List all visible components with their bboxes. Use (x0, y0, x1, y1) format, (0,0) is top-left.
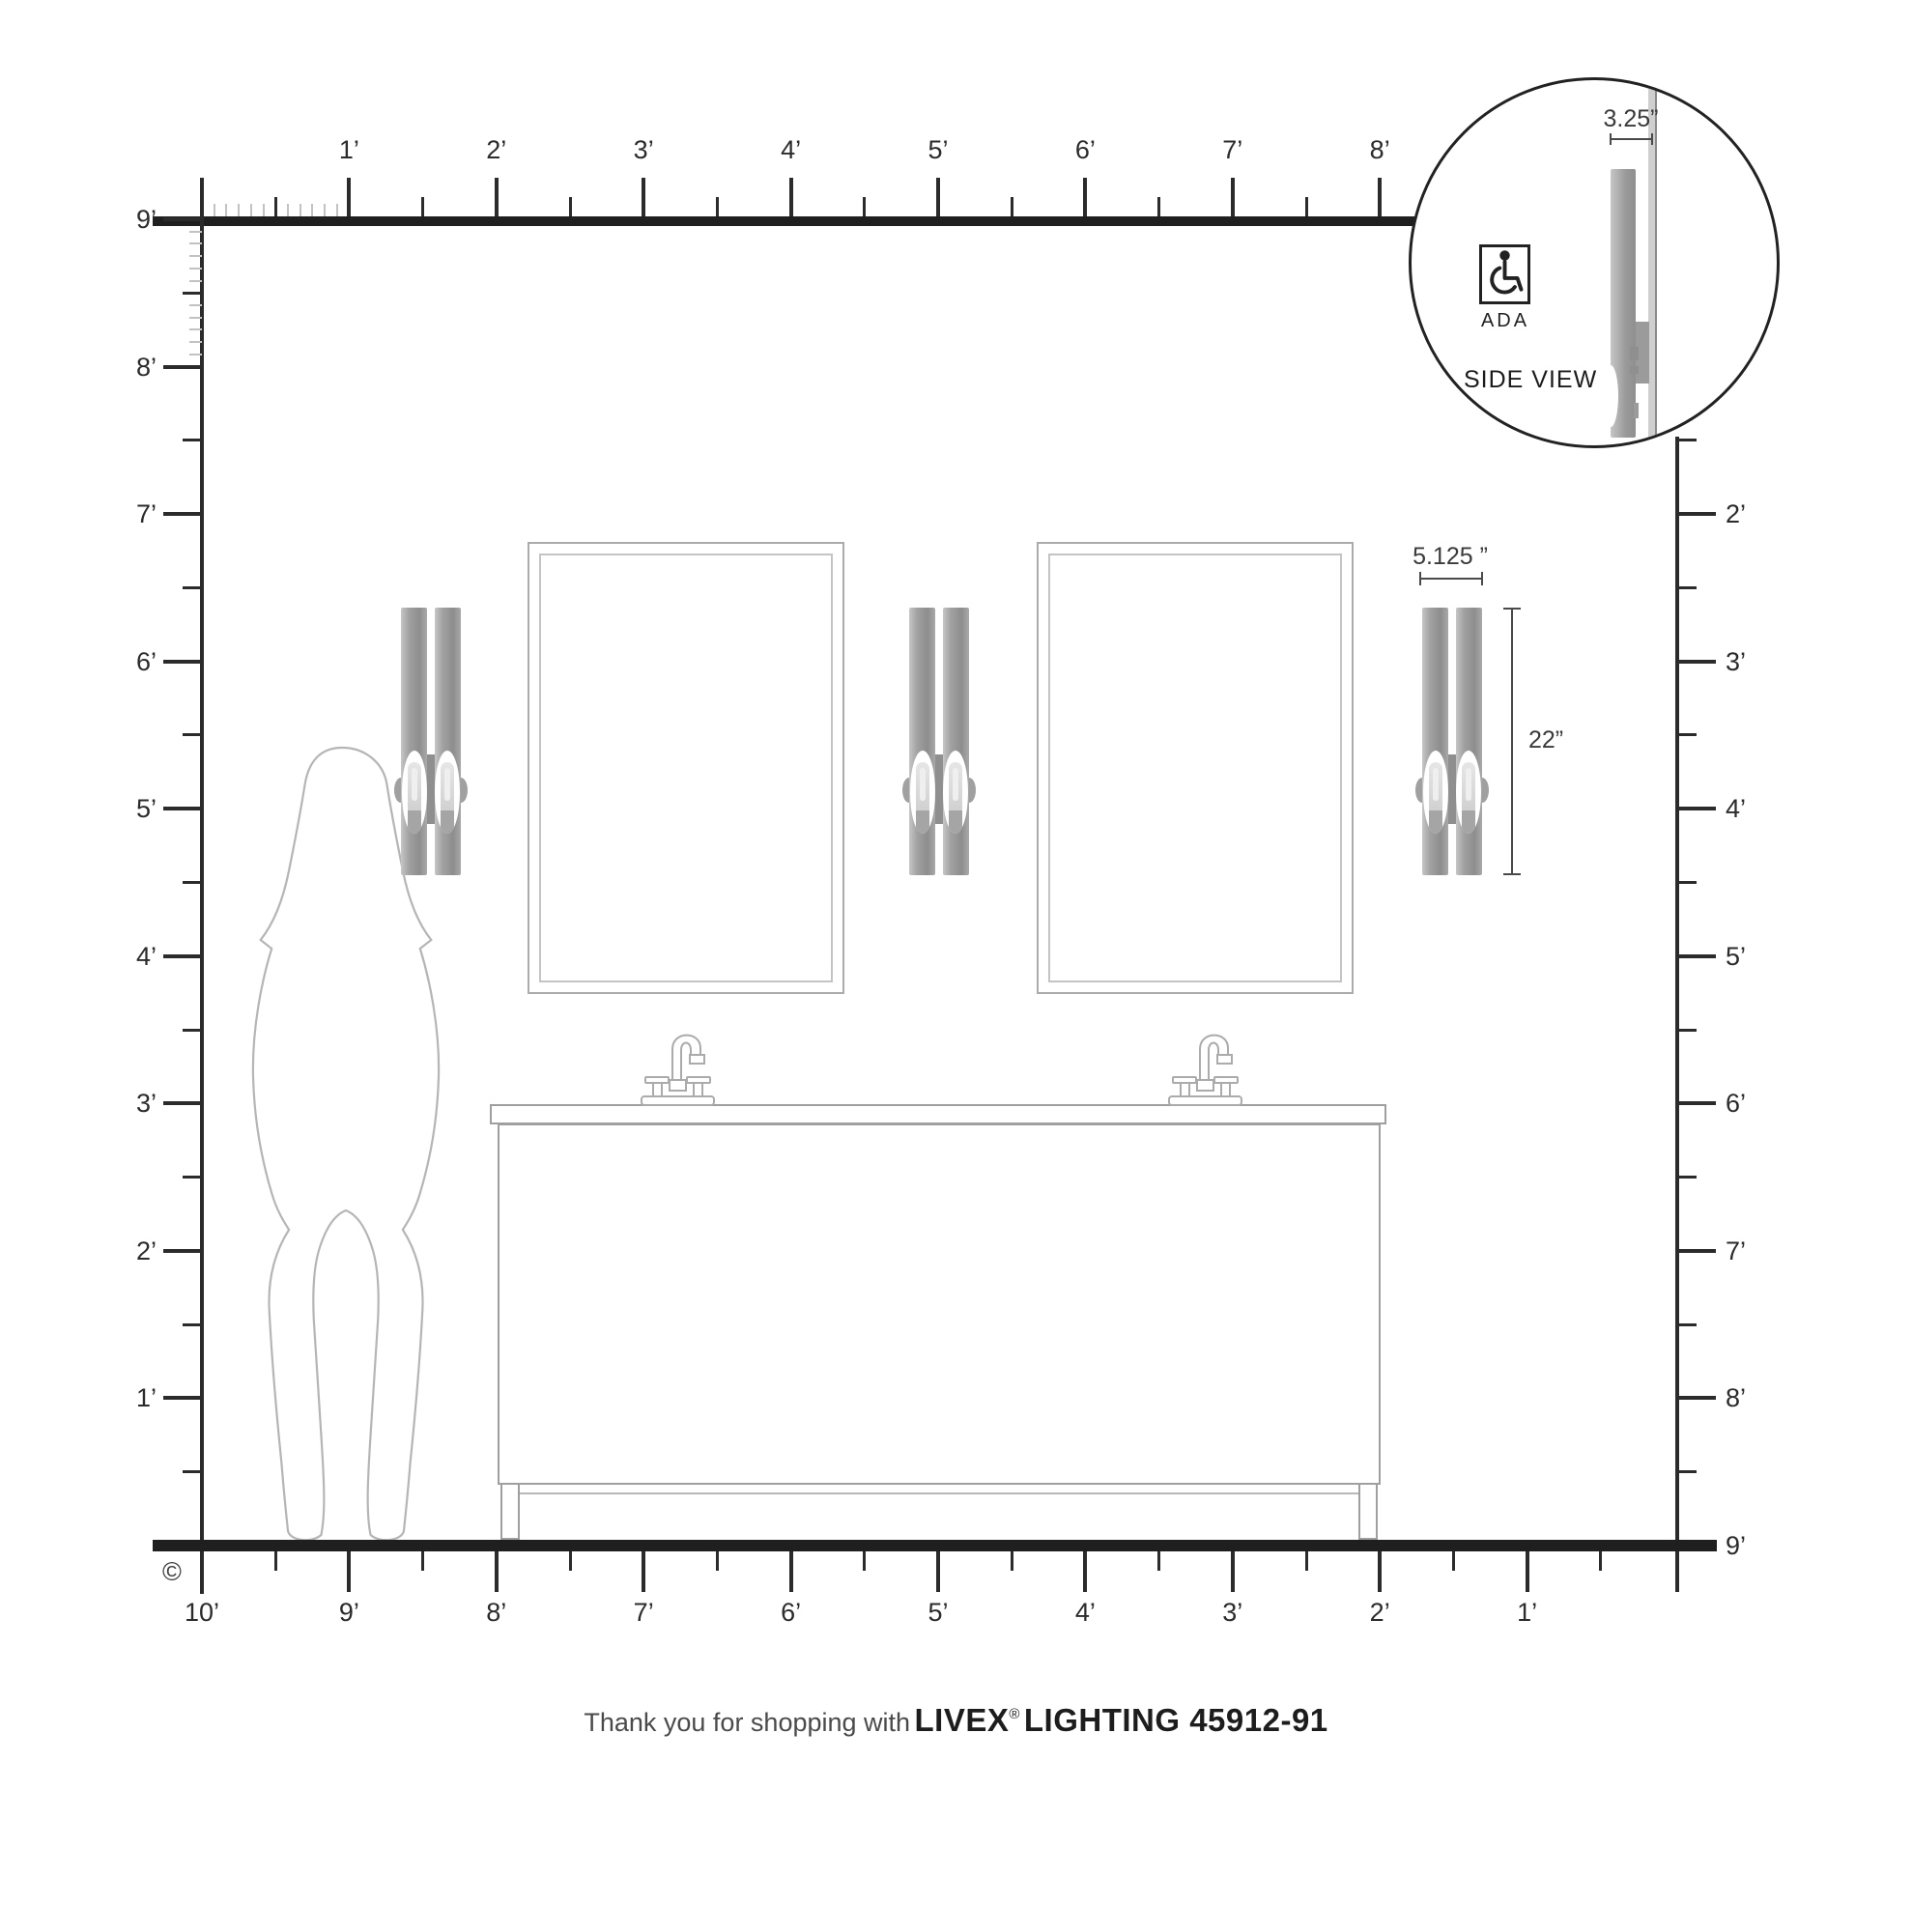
right-ruler-half-tick (1677, 1029, 1697, 1032)
top-ruler-half-tick (1157, 197, 1160, 216)
ruler-label: 4’ (136, 942, 157, 971)
ruler-label: 9’ (339, 1598, 359, 1627)
top-ruler-foot-tick (642, 178, 645, 216)
ruler-label: 3’ (634, 135, 654, 164)
left-ruler-half-tick (183, 439, 202, 441)
candle-bulb-icon (949, 762, 962, 812)
left-ruler-inch-tick (189, 328, 202, 330)
ada-box (1479, 244, 1530, 304)
top-ruler-foot-tick (347, 178, 351, 216)
height-dimension-end-cap (1503, 873, 1521, 875)
top-ruler-inch-tick (336, 204, 338, 216)
left-mirror (528, 542, 844, 994)
bottom-ruler-foot-tick (936, 1551, 940, 1592)
bottom-ruler-half-tick (1599, 1551, 1602, 1571)
left-ruler-foot-tick (163, 807, 202, 810)
left-ruler-half-tick (183, 733, 202, 736)
sconce-tube (943, 608, 969, 875)
ruler-label: 2’ (1726, 499, 1746, 528)
right-ruler-half-tick (1677, 586, 1697, 589)
left-ruler-inch-tick (189, 242, 202, 244)
bottom-ruler-foot-tick (495, 1551, 499, 1592)
inset-mount-knob (1630, 347, 1639, 360)
right-ruler-half-tick (1677, 1323, 1697, 1326)
left-ruler-half-tick (183, 1323, 202, 1326)
bulb-socket (1462, 810, 1475, 834)
left-ruler-inch-tick (189, 317, 202, 319)
top-ruler-inch-tick (250, 204, 252, 216)
ruler-label: 10’ (185, 1598, 219, 1627)
ruler-label: 1’ (1517, 1598, 1537, 1627)
ruler-label: 5’ (136, 794, 157, 823)
left-ruler-foot-tick (163, 365, 202, 369)
ruler-label: 5’ (1726, 942, 1746, 971)
ruler-label: 9’ (1726, 1531, 1746, 1560)
bottom-ruler-foot-tick (1231, 1551, 1235, 1592)
wheelchair-icon (1482, 247, 1527, 301)
left-ruler-half-tick (183, 1470, 202, 1473)
ruler-label: 4’ (1075, 1598, 1096, 1627)
inset-mount-knob (1630, 366, 1639, 374)
candle-bulb-icon (1429, 762, 1442, 812)
vanity-foot-left (500, 1483, 520, 1540)
sconce-tube (1456, 608, 1482, 875)
ruler-label: 4’ (781, 135, 801, 164)
top-ruler-half-tick (1011, 197, 1013, 216)
sconce-tube (401, 608, 427, 875)
top-ruler-inch-tick (238, 204, 240, 216)
inset-dimension-end-tick (1610, 133, 1612, 145)
bottom-ruler-half-tick (569, 1551, 572, 1571)
left-ruler-inch-tick (189, 255, 202, 257)
candle-bulb-icon (1462, 762, 1475, 812)
left-faucet (632, 1020, 724, 1107)
top-ruler-foot-tick (936, 178, 940, 216)
brand-name: LIVEX (915, 1702, 1010, 1738)
left-ruler-half-tick (183, 586, 202, 589)
right-ruler-foot-tick (1677, 1249, 1716, 1253)
ruler-label: 7’ (634, 1598, 654, 1627)
right-ruler-half-tick (1677, 1470, 1697, 1473)
bottom-ruler-half-tick (1452, 1551, 1455, 1571)
right-ruler-half-tick (1677, 1176, 1697, 1179)
left-ruler-inch-tick (189, 280, 202, 282)
bulb-socket (441, 810, 454, 834)
top-ruler-inch-tick (324, 204, 326, 216)
ruler-label: 9’ (136, 205, 157, 234)
inset-mount-stem (1634, 403, 1639, 418)
faucet-base (642, 1096, 714, 1105)
sconce-lamp-opening (435, 751, 460, 834)
ruler-label: 5’ (927, 135, 948, 164)
left-ruler-foot-tick (163, 217, 202, 221)
top-ruler-half-tick (274, 197, 277, 216)
bulb-socket (949, 810, 962, 834)
ruler-label: 3’ (1726, 647, 1746, 676)
fixture-width-dimension: 5.125 ” (1413, 543, 1488, 571)
left-ruler-foot-tick (163, 1249, 202, 1253)
right-wall-sconce (1422, 608, 1482, 875)
ruler-label: 6’ (1726, 1089, 1746, 1118)
sconce-lamp-opening (1423, 751, 1448, 834)
left-ruler-half-tick (183, 881, 202, 884)
right-ruler-half-tick (1677, 733, 1697, 736)
bottom-ruler-foot-tick (347, 1551, 351, 1592)
ruler-label: 3’ (1222, 1598, 1242, 1627)
sconce-lamp-opening (910, 751, 935, 834)
top-ruler-half-tick (569, 197, 572, 216)
sconce-lamp-opening (943, 751, 968, 834)
ruler-label: 5’ (927, 1598, 948, 1627)
bottom-ruler-half-tick (863, 1551, 866, 1571)
top-ruler-foot-tick (1083, 178, 1087, 216)
ruler-label: 1’ (136, 1383, 157, 1412)
width-dimension-line (1419, 578, 1483, 580)
left-ruler-inch-tick (189, 268, 202, 270)
bottom-ruler-half-tick (421, 1551, 424, 1571)
center-wall-sconce (909, 608, 969, 875)
top-ruler-foot-tick (789, 178, 793, 216)
candle-bulb-icon (441, 762, 454, 812)
inset-tube-waist (1603, 365, 1618, 427)
footer-prefix: Thank you for shopping with (584, 1708, 910, 1737)
footer-text: Thank you for shopping with LIVEX® LIGHT… (0, 1702, 1912, 1739)
top-ruler-half-tick (421, 197, 424, 216)
top-ruler-half-tick (716, 197, 719, 216)
top-ruler-inch-tick (214, 204, 215, 216)
ruler-label: 8’ (486, 1598, 506, 1627)
top-ruler-half-tick (1305, 197, 1308, 216)
left-wall-sconce (401, 608, 461, 875)
bottom-ruler-foot-tick (1526, 1551, 1529, 1592)
left-ruler-foot-tick (163, 512, 202, 516)
left-ruler-half-tick (183, 292, 202, 295)
vanity-cabinet (498, 1123, 1381, 1485)
left-ruler-inch-tick (189, 231, 202, 233)
candle-bulb-icon (408, 762, 421, 812)
bottom-ruler-foot-tick (789, 1551, 793, 1592)
ruler-label: 4’ (1726, 794, 1746, 823)
bottom-ruler-half-tick (1157, 1551, 1160, 1571)
ruler-label: 3’ (136, 1089, 157, 1118)
right-ruler-foot-tick (1677, 954, 1716, 958)
width-dimension-end-tick (1481, 572, 1483, 585)
floor-line (153, 1540, 1717, 1551)
right-faucet (1159, 1020, 1251, 1107)
top-ruler-foot-tick (1231, 178, 1235, 216)
left-ruler-foot-tick (163, 1396, 202, 1400)
sconce-lamp-opening (1456, 751, 1481, 834)
right-ruler-foot-tick (1677, 807, 1716, 810)
inset-width-dimension: 3.25” (1604, 105, 1659, 133)
product-number: LIGHTING 45912-91 (1024, 1702, 1328, 1738)
ruler-label: 2’ (1370, 1598, 1390, 1627)
left-ruler-foot-tick (163, 954, 202, 958)
right-ruler-foot-tick (1677, 512, 1716, 516)
ada-label: ADA (1462, 310, 1549, 332)
left-ruler-inch-tick (189, 304, 202, 306)
ruler-label: 2’ (136, 1236, 157, 1265)
top-ruler-foot-tick (1378, 178, 1382, 216)
bottom-ruler-half-tick (1305, 1551, 1308, 1571)
left-ruler-inch-tick (189, 354, 202, 355)
inset-dimension-line (1610, 138, 1653, 140)
ruler-label: 1’ (339, 135, 359, 164)
dimension-diagram: 1’2’3’4’5’6’7’8’9’8’7’6’5’4’3’2’1’2’3’4’… (0, 0, 1912, 1932)
bottom-ruler-foot-tick (642, 1551, 645, 1592)
ruler-label: 6’ (781, 1598, 801, 1627)
bottom-ruler-foot-tick (1378, 1551, 1382, 1592)
vanity-countertop (490, 1104, 1386, 1124)
right-ruler-line (1675, 437, 1679, 1592)
width-dimension-end-tick (1419, 572, 1421, 585)
vanity-kick-rail (520, 1492, 1358, 1494)
right-ruler-half-tick (1677, 439, 1697, 441)
bulb-socket (408, 810, 421, 834)
bulb-socket (916, 810, 929, 834)
faucet-base (1169, 1096, 1241, 1105)
ruler-label: 7’ (1726, 1236, 1746, 1265)
left-ruler-line (200, 216, 204, 1594)
sconce-tube (1422, 608, 1448, 875)
bottom-ruler-foot-tick (200, 1551, 204, 1592)
right-ruler-foot-tick (1677, 1101, 1716, 1105)
top-ruler-foot-tick (200, 178, 204, 216)
left-ruler-inch-tick (189, 341, 202, 343)
left-ruler-foot-tick (163, 1101, 202, 1105)
copyright-symbol: © (162, 1557, 182, 1587)
height-dimension-line (1511, 608, 1513, 875)
bottom-ruler-half-tick (274, 1551, 277, 1571)
ruler-label: 6’ (1075, 135, 1096, 164)
side-view-inset: 3.25” ADA SIDE VIEW (1409, 77, 1780, 448)
sconce-lamp-opening (402, 751, 427, 834)
right-mirror (1037, 542, 1354, 994)
sconce-tube (435, 608, 461, 875)
top-ruler-inch-tick (300, 204, 301, 216)
sconce-tube (909, 608, 935, 875)
top-ruler-half-tick (863, 197, 866, 216)
inset-wall-edge (1655, 80, 1657, 448)
height-dimension-end-cap (1503, 608, 1521, 610)
top-ruler-inch-tick (287, 204, 289, 216)
ruler-label: 8’ (1370, 135, 1390, 164)
vanity-foot-right (1358, 1483, 1378, 1540)
top-ruler-inch-tick (311, 204, 313, 216)
inset-dimension-end-tick (1651, 133, 1653, 145)
ruler-label: 7’ (136, 499, 157, 528)
right-ruler-half-tick (1677, 881, 1697, 884)
ceiling-line (153, 216, 1469, 226)
side-view-label: SIDE VIEW (1464, 366, 1597, 394)
top-ruler-inch-tick (225, 204, 227, 216)
top-ruler-inch-tick (263, 204, 265, 216)
top-ruler-foot-tick (495, 178, 499, 216)
bottom-ruler-half-tick (1011, 1551, 1013, 1571)
left-mirror-inner-frame (539, 554, 833, 982)
ruler-label: 2’ (486, 135, 506, 164)
right-ruler-foot-tick (1677, 1396, 1716, 1400)
bulb-socket (1429, 810, 1442, 834)
bottom-ruler-foot-tick (1083, 1551, 1087, 1592)
ruler-label: 6’ (136, 647, 157, 676)
ruler-label: 7’ (1222, 135, 1242, 164)
ruler-label: 8’ (136, 353, 157, 382)
ruler-label: 8’ (1726, 1383, 1746, 1412)
left-ruler-half-tick (183, 1176, 202, 1179)
left-ruler-half-tick (183, 1029, 202, 1032)
right-mirror-inner-frame (1048, 554, 1342, 982)
fixture-height-dimension: 22” (1528, 726, 1563, 754)
left-ruler-foot-tick (163, 660, 202, 664)
right-ruler-foot-tick (1677, 660, 1716, 664)
candle-bulb-icon (916, 762, 929, 812)
bottom-ruler-half-tick (716, 1551, 719, 1571)
registered-mark: ® (1009, 1706, 1019, 1722)
